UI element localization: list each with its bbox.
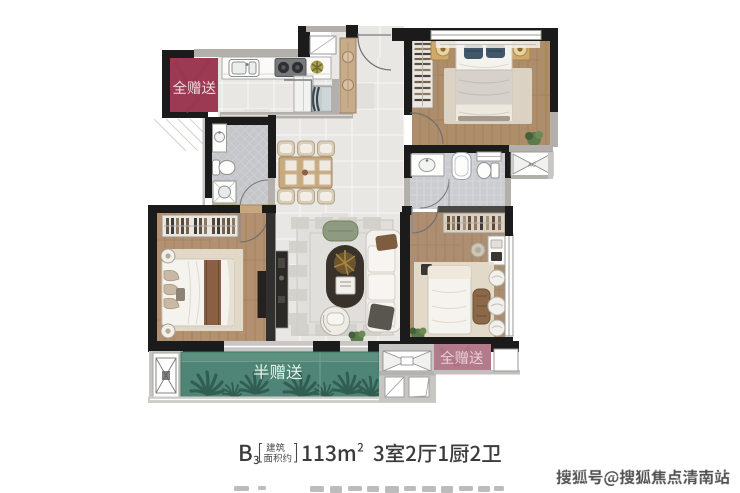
svg-text:AC: AC [528,163,536,169]
